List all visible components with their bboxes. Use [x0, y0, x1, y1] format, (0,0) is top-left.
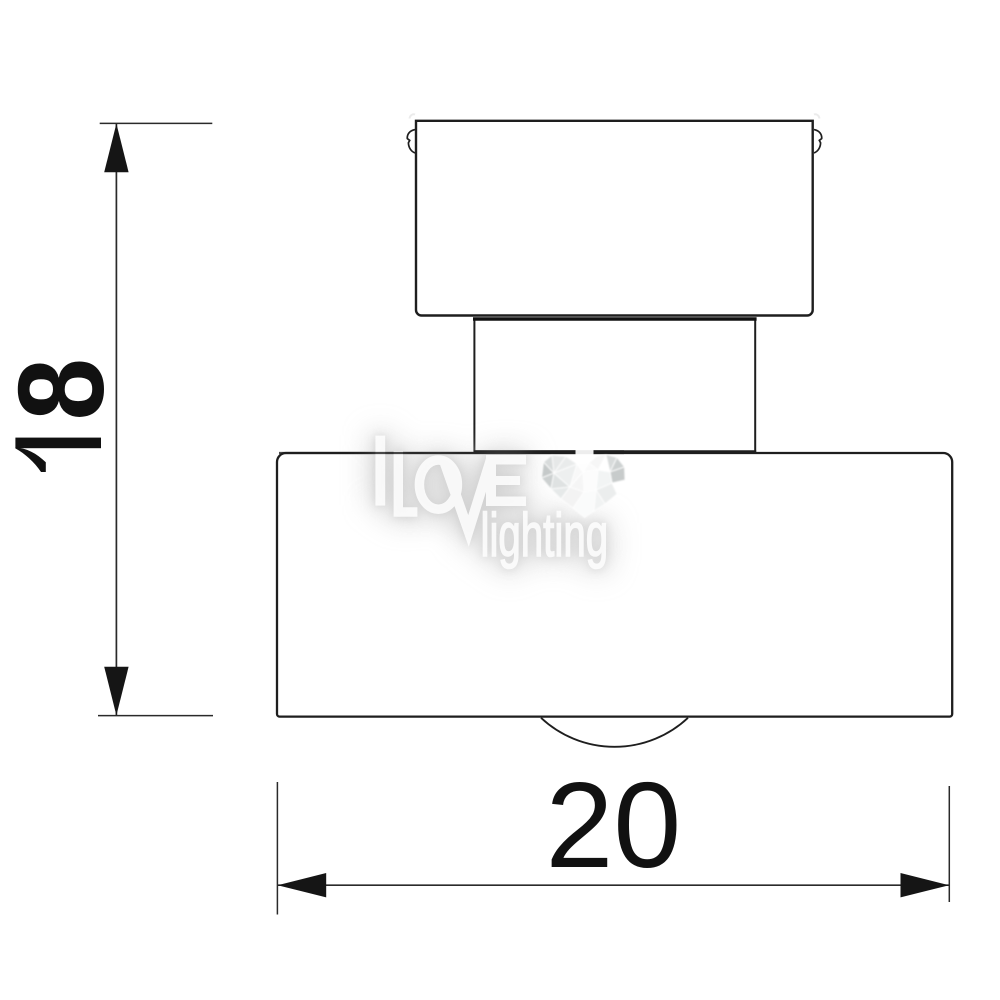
svg-text:20: 20	[546, 757, 682, 893]
svg-text:8: 8	[0, 358, 129, 420]
